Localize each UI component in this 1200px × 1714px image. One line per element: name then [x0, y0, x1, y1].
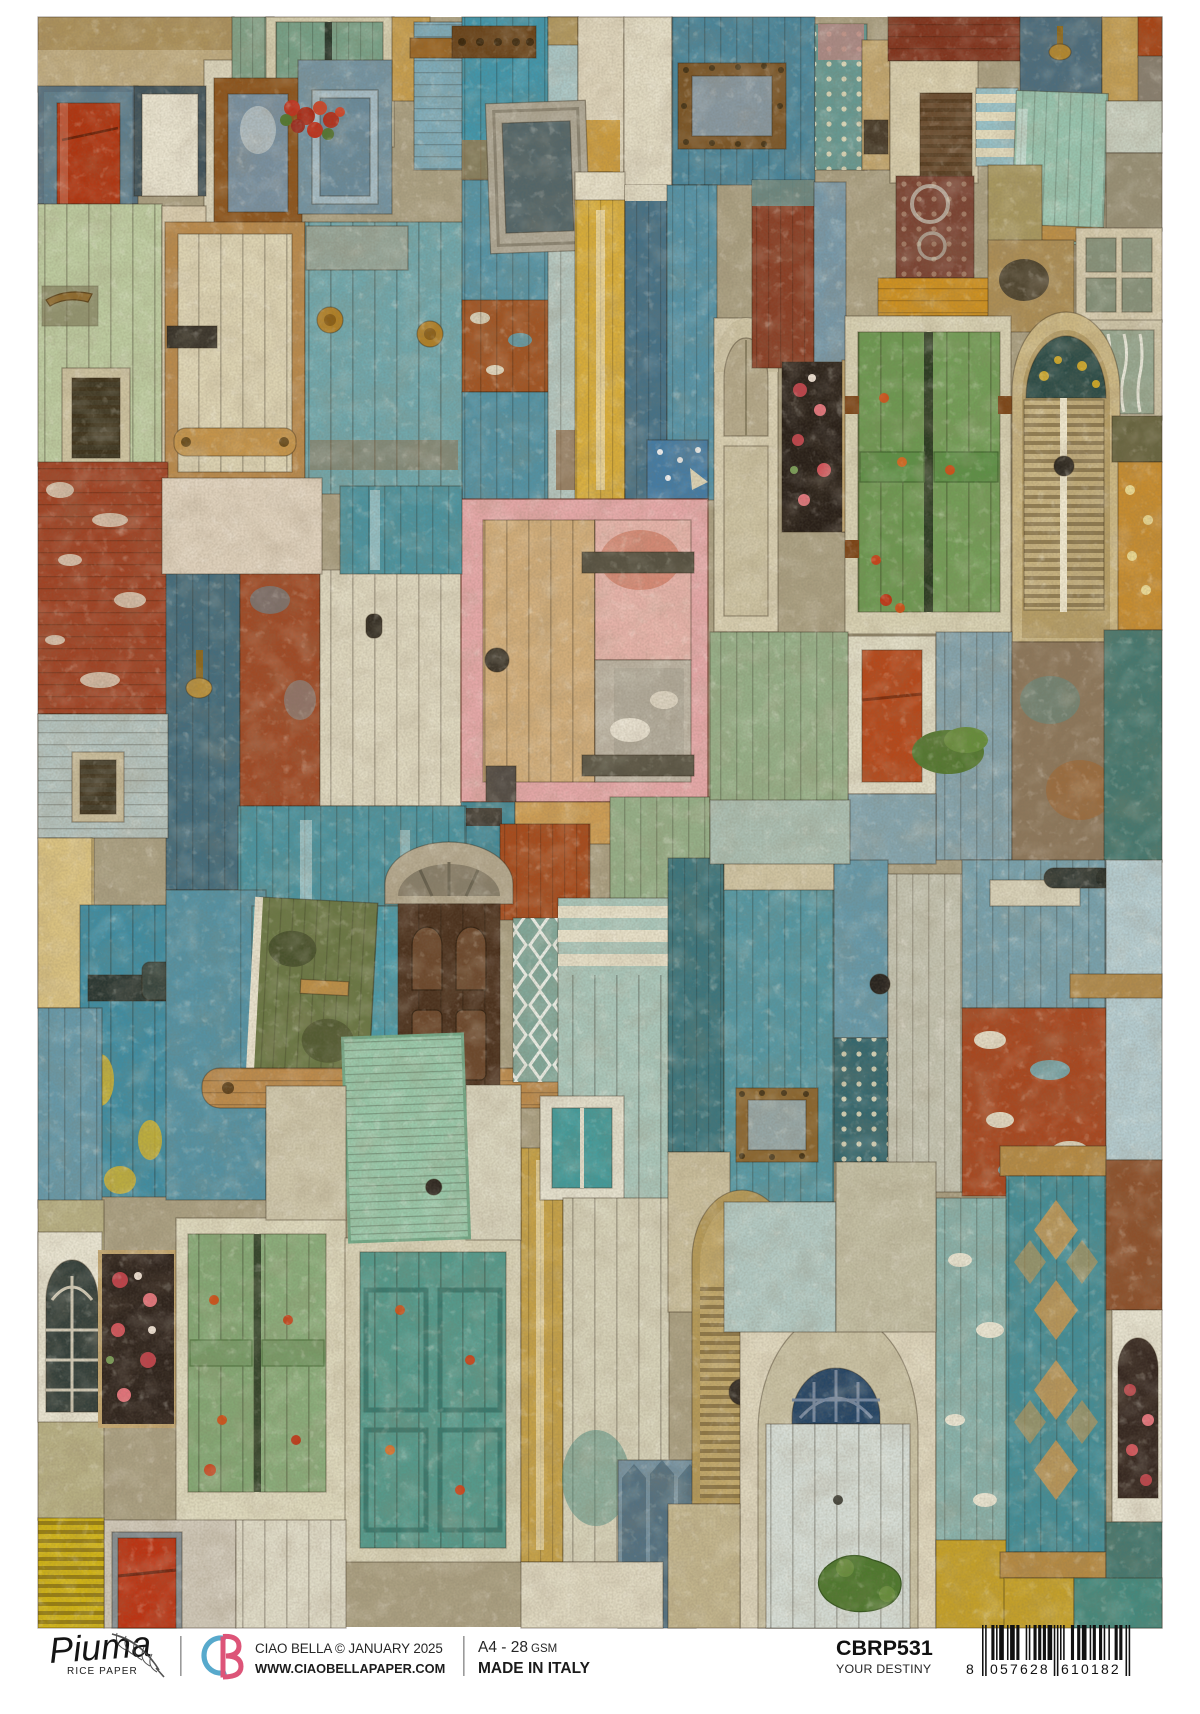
- svg-text:GSM: GSM: [531, 1643, 557, 1655]
- svg-text:CIAO BELLA © JANUARY 2025: CIAO BELLA © JANUARY 2025: [255, 1641, 443, 1656]
- svg-text:CBRP531: CBRP531: [836, 1636, 933, 1660]
- svg-text:057628: 057628: [990, 1661, 1050, 1677]
- svg-text:A4 - 28: A4 - 28: [478, 1639, 528, 1656]
- svg-text:YOUR DESTINY: YOUR DESTINY: [836, 1662, 931, 1676]
- svg-text:8: 8: [966, 1661, 974, 1677]
- svg-text:RICE PAPER: RICE PAPER: [67, 1666, 138, 1677]
- svg-text:610182: 610182: [1061, 1661, 1121, 1677]
- svg-text:MADE IN ITALY: MADE IN ITALY: [478, 1660, 591, 1677]
- svg-text:WWW.CIAOBELLAPAPER.COM: WWW.CIAOBELLAPAPER.COM: [255, 1661, 445, 1676]
- svg-text:Piuma: Piuma: [48, 1623, 153, 1671]
